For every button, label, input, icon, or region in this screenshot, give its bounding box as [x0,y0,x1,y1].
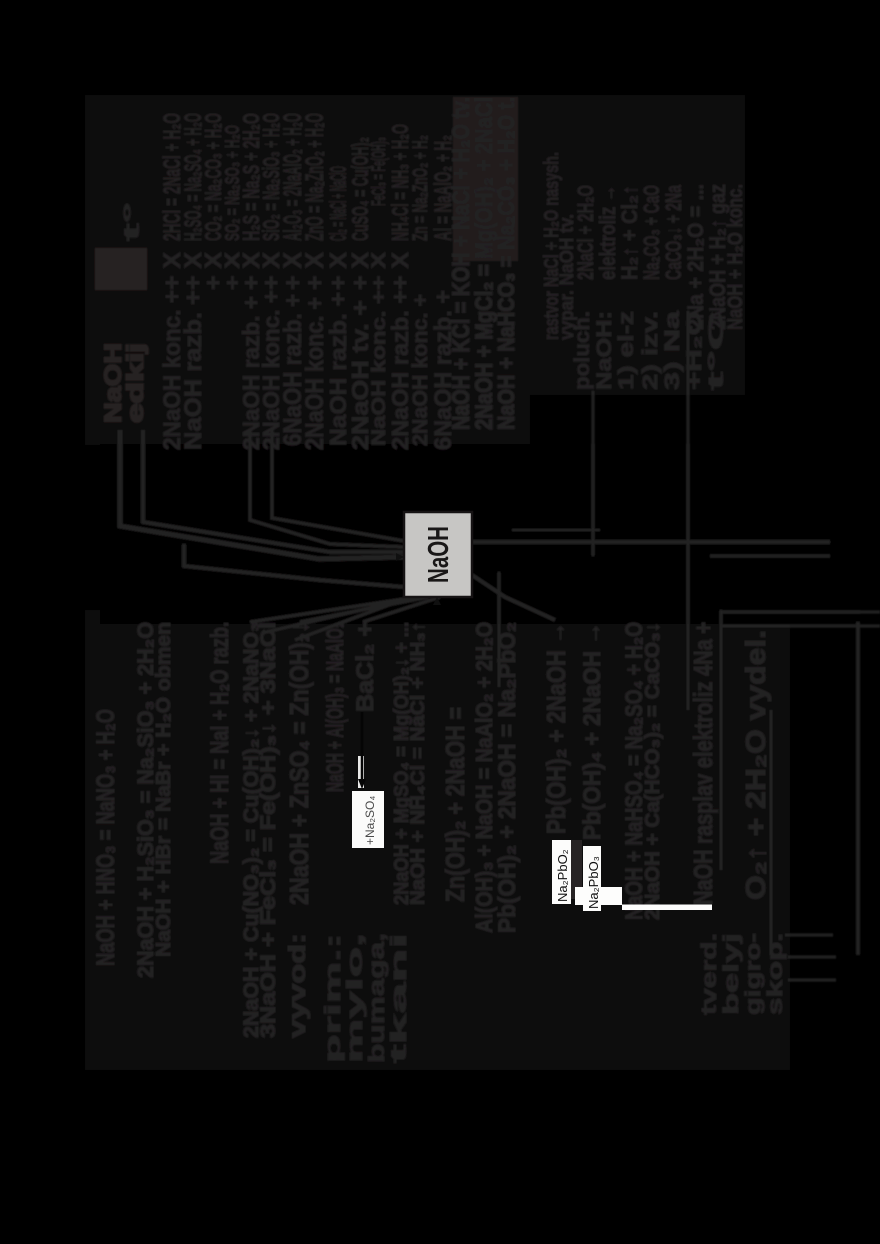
svg-text:poluch.: poluch. [571,311,594,390]
svg-text:Pb(OH)₄ + 2NaOH →: Pb(OH)₄ + 2NaOH → [579,622,606,840]
svg-text:vyvod:: vyvod: [284,933,310,1038]
svg-text:3) Na: 3) Na [661,311,684,390]
svg-text:NaOH + HI = NaI + H₂O razb.: NaOH + HI = NaI + H₂O razb. [206,622,234,864]
svg-text:NaOH razb. +: NaOH razb. + [180,290,207,450]
svg-text:Na₂PbO₂: Na₂PbO₂ [555,849,570,902]
svg-text:NaOH + H₂O konc.: NaOH + H₂O konc. [724,184,747,330]
svg-text:3NaOH + FeCl₃ = Fe(OH)₃↓ + 3Na: 3NaOH + FeCl₃ = Fe(OH)₃↓ + 3NaCl [257,622,280,1038]
svg-text:1) el-z: 1) el-z [615,311,638,390]
svg-text:+H₂O: +H₂O [683,311,706,390]
svg-text:tkani: tkani [386,933,411,1063]
svg-text:2) izv.: 2) izv. [639,311,662,390]
svg-text:2NaOH + Ca(HCO₃)₂ = CaCO₃↓: 2NaOH + Ca(HCO₃)₂ = CaCO₃↓ [642,622,664,920]
svg-text:t°C: t°C [705,311,728,390]
svg-text:BaCl₂ +: BaCl₂ + [352,622,379,712]
svg-text:tverd.: tverd. [698,933,721,1015]
svg-text:Zn = Na₂ZnO₂ + H₂: Zn = Na₂ZnO₂ + H₂ [409,135,432,241]
svg-text:Na₂PbO₃: Na₂PbO₃ [586,856,601,909]
svg-text:NaOH: NaOH [423,526,455,583]
svg-text:+ X: + X [387,251,413,290]
svg-text:2NaOH + ZnSO₄ = Zn(OH)₂↓: 2NaOH + ZnSO₄ = Zn(OH)₂↓ [284,622,314,905]
svg-text:gigro-: gigro- [742,933,765,1015]
svg-text:Pb(OH)₂ + 2NaOH →: Pb(OH)₂ + 2NaOH → [541,622,571,834]
svg-text:O₂↑ + 2H₂O vydel.: O₂↑ + 2H₂O vydel. [740,630,771,900]
svg-text:NaOH + NH₄Cl = NaCl + NH₃↑: NaOH + NH₄Cl = NaCl + NH₃↑ [408,622,429,905]
svg-text:belyj: belyj [720,933,743,1015]
svg-text:+Na₂SO₄: +Na₂SO₄ [363,796,377,845]
svg-text:NaOH + Al(OH)₃ = NaAlO₂: NaOH + Al(OH)₃ = NaAlO₂ [322,622,349,792]
svg-text:NaOH + HBr = NaBr + H₂O obmen: NaOH + HBr = NaBr + H₂O obmen [153,622,175,957]
svg-text:NaOH rasplav elektroliz 4Na +: NaOH rasplav elektroliz 4Na + [688,622,718,905]
svg-text:2NaOH konc. +: 2NaOH konc. + [409,294,432,446]
svg-text:t°: t° [119,202,144,241]
svg-text:NaOH + NaHCO₃ = Na₂CO₃ + H₂O t: NaOH + NaHCO₃ = Na₂CO₃ + H₂O t. [493,97,519,430]
svg-text:NaOH + HNO₃ = NaNO₃ + H₂O: NaOH + HNO₃ = NaNO₃ + H₂O [92,709,120,966]
svg-text:edkij: edkij [122,343,148,423]
svg-text:Zn(OH)₂ + 2NaOH =: Zn(OH)₂ + 2NaOH = [440,707,470,902]
svg-text:skop.: skop. [764,933,787,1015]
svg-text:NaOH:: NaOH: [593,311,616,390]
